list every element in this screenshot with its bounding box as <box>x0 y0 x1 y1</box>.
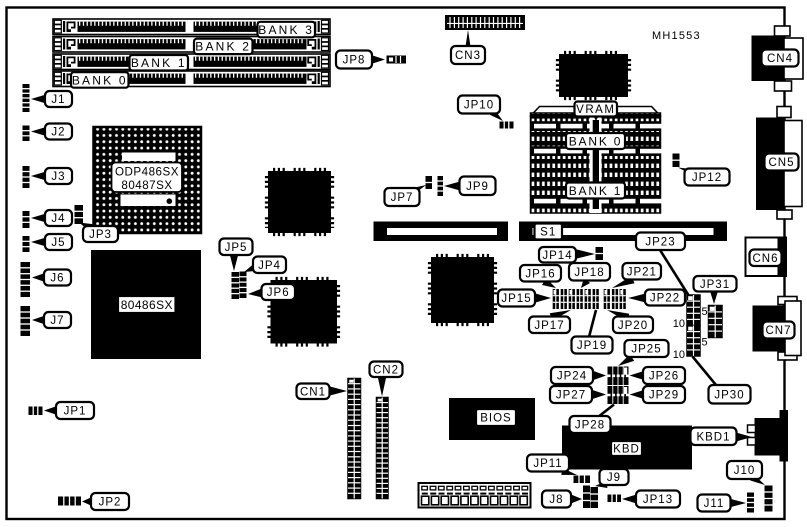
svg-text:BIOS: BIOS <box>480 413 511 425</box>
svg-text:JP13: JP13 <box>643 494 673 506</box>
svg-text:J2: J2 <box>51 127 65 139</box>
svg-text:J6: J6 <box>50 273 64 285</box>
svg-text:JP27: JP27 <box>556 390 586 402</box>
svg-text:JP16: JP16 <box>525 268 555 280</box>
svg-text:JP29: JP29 <box>649 390 679 402</box>
svg-text:VRAM: VRAM <box>576 104 615 116</box>
svg-text:KBD1: KBD1 <box>696 431 730 443</box>
svg-text:JP14: JP14 <box>542 250 572 262</box>
svg-text:KBD: KBD <box>613 444 640 456</box>
svg-text:JP15: JP15 <box>501 293 531 305</box>
svg-text:J10: J10 <box>734 465 756 477</box>
svg-text:80486SX: 80486SX <box>121 298 173 312</box>
svg-text:CN5: CN5 <box>768 157 794 169</box>
svg-text:JP30: JP30 <box>714 389 744 401</box>
svg-text:J3: J3 <box>51 171 65 183</box>
svg-text:JP24: JP24 <box>557 371 587 383</box>
svg-text:80487SX: 80487SX <box>121 179 172 192</box>
svg-text:BANK 0: BANK 0 <box>569 134 623 148</box>
svg-text:S1: S1 <box>540 227 556 239</box>
svg-text:JP28: JP28 <box>575 420 605 432</box>
svg-text:J4: J4 <box>51 213 65 225</box>
svg-text:BANK 3: BANK 3 <box>258 23 314 37</box>
svg-text:CN3: CN3 <box>455 50 481 62</box>
svg-text:JP31: JP31 <box>700 279 730 291</box>
svg-text:JP10: JP10 <box>464 100 494 112</box>
svg-text:JP22: JP22 <box>650 293 680 305</box>
svg-text:10: 10 <box>673 349 685 361</box>
svg-text:JP25: JP25 <box>631 344 661 356</box>
svg-text:J9: J9 <box>607 472 621 484</box>
svg-text:JP1: JP1 <box>64 406 87 418</box>
svg-text:J5: J5 <box>51 237 65 249</box>
svg-text:JP2: JP2 <box>99 497 122 509</box>
svg-text:JP26: JP26 <box>649 371 679 383</box>
svg-text:JP21: JP21 <box>627 266 657 278</box>
svg-text:10: 10 <box>673 318 685 330</box>
svg-text:JP7: JP7 <box>391 192 414 204</box>
svg-text:JP9: JP9 <box>466 181 489 193</box>
svg-text:JP19: JP19 <box>577 340 607 352</box>
svg-text:BANK 2: BANK 2 <box>195 40 251 54</box>
svg-text:JP11: JP11 <box>533 458 562 470</box>
svg-text:5: 5 <box>702 337 708 349</box>
svg-text:BANK 1: BANK 1 <box>569 184 623 198</box>
svg-text:CN1: CN1 <box>300 386 326 398</box>
svg-text:CN4: CN4 <box>767 53 793 65</box>
svg-text:JP18: JP18 <box>574 267 604 279</box>
svg-text:J8: J8 <box>549 494 563 506</box>
svg-text:JP20: JP20 <box>618 320 648 332</box>
svg-text:J1: J1 <box>51 94 65 106</box>
svg-text:CN2: CN2 <box>373 364 399 376</box>
svg-text:J11: J11 <box>704 498 725 510</box>
svg-text:5: 5 <box>702 306 708 318</box>
svg-text:BANK 0: BANK 0 <box>72 73 128 87</box>
svg-text:JP5: JP5 <box>225 242 248 254</box>
svg-text:JP6: JP6 <box>267 287 290 299</box>
svg-text:J7: J7 <box>50 315 64 327</box>
svg-text:ODP486SX: ODP486SX <box>115 165 179 178</box>
svg-text:CN7: CN7 <box>765 325 791 337</box>
svg-text:JP12: JP12 <box>692 172 722 184</box>
svg-text:JP17: JP17 <box>534 320 564 332</box>
svg-text:MH1553: MH1553 <box>652 30 701 42</box>
svg-text:JP23: JP23 <box>645 236 675 248</box>
svg-text:JP8: JP8 <box>343 55 366 67</box>
svg-text:JP3: JP3 <box>89 229 112 241</box>
svg-text:BANK 1: BANK 1 <box>131 56 187 70</box>
svg-text:CN6: CN6 <box>752 253 778 265</box>
svg-text:JP4: JP4 <box>258 260 281 272</box>
